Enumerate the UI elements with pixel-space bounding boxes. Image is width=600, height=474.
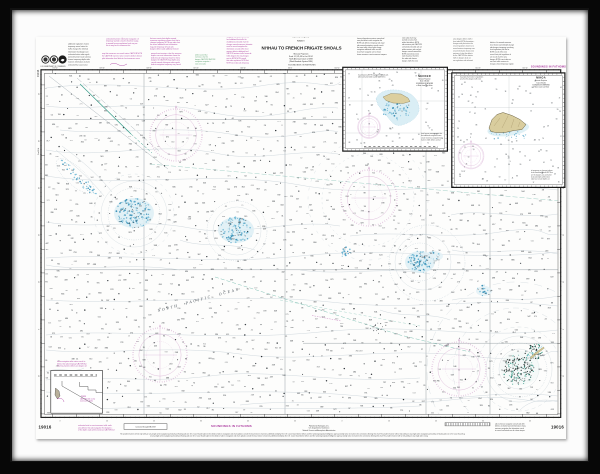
svg-text:46: 46 — [250, 137, 252, 139]
svg-text:728: 728 — [89, 252, 92, 254]
svg-text:20: 20 — [508, 140, 510, 142]
svg-text:46: 46 — [199, 363, 201, 365]
svg-text:979: 979 — [179, 111, 182, 113]
svg-text:673: 673 — [267, 257, 270, 259]
svg-text:974: 974 — [323, 117, 326, 119]
svg-text:896: 896 — [291, 327, 294, 329]
svg-text:92: 92 — [206, 221, 208, 223]
svg-text:45: 45 — [461, 84, 463, 86]
svg-text:27: 27 — [421, 349, 423, 351]
svg-text:70: 70 — [542, 138, 544, 140]
svg-text:61: 61 — [237, 211, 239, 213]
svg-text:36: 36 — [220, 87, 222, 89]
svg-text:51: 51 — [169, 210, 171, 212]
svg-text:95: 95 — [116, 95, 118, 97]
svg-text:73: 73 — [219, 373, 221, 375]
svg-text:802: 802 — [166, 180, 169, 182]
svg-text:899: 899 — [77, 298, 80, 300]
svg-text:520: 520 — [433, 278, 436, 280]
svg-text:364: 364 — [231, 238, 234, 240]
svg-text:32: 32 — [197, 406, 199, 408]
svg-text:795: 795 — [458, 321, 461, 323]
svg-text:992: 992 — [427, 180, 430, 182]
svg-text:88: 88 — [58, 87, 60, 89]
svg-text:90: 90 — [415, 73, 417, 75]
svg-text:44: 44 — [202, 279, 204, 281]
svg-text:88: 88 — [390, 408, 392, 410]
svg-text:32: 32 — [250, 412, 252, 414]
svg-text:540: 540 — [453, 387, 456, 389]
svg-text:323: 323 — [128, 232, 131, 234]
svg-text:404: 404 — [495, 332, 498, 334]
svg-text:398: 398 — [159, 223, 162, 225]
svg-text:717: 717 — [46, 140, 49, 142]
svg-text:coast chart additional chart n: coast chart additional chart n — [453, 37, 473, 38]
svg-text:960: 960 — [498, 203, 501, 205]
svg-text:88: 88 — [476, 125, 478, 127]
svg-text:429: 429 — [118, 280, 121, 282]
svg-text:73: 73 — [458, 121, 460, 123]
svg-text:75: 75 — [209, 302, 211, 304]
svg-text:86: 86 — [451, 278, 453, 280]
svg-text:817: 817 — [422, 401, 425, 403]
svg-text:460: 460 — [431, 412, 434, 414]
svg-text:91: 91 — [265, 182, 267, 184]
svg-text:HAWAI‘I: HAWAI‘I — [297, 40, 305, 43]
svg-text:51: 51 — [160, 412, 162, 414]
svg-text:19016: 19016 — [39, 425, 52, 430]
svg-text:888: 888 — [230, 280, 233, 282]
svg-text:333: 333 — [301, 381, 304, 383]
svg-text:43: 43 — [392, 85, 394, 87]
svg-text:888: 888 — [240, 219, 243, 221]
svg-text:368: 368 — [228, 223, 231, 225]
svg-text:361: 361 — [267, 342, 270, 344]
svg-text:814: 814 — [529, 257, 532, 259]
svg-text:74: 74 — [424, 172, 426, 174]
svg-text:259: 259 — [144, 290, 147, 292]
svg-text:796: 796 — [368, 377, 371, 379]
svg-text:41: 41 — [76, 359, 78, 361]
svg-text:38: 38 — [437, 91, 439, 93]
svg-text:804: 804 — [415, 248, 418, 250]
svg-text:271: 271 — [80, 103, 83, 105]
svg-text:98: 98 — [140, 213, 142, 215]
svg-text:247: 247 — [70, 210, 73, 212]
svg-text:40: 40 — [150, 81, 152, 83]
svg-text:74: 74 — [240, 358, 242, 360]
svg-text:609: 609 — [140, 104, 143, 106]
svg-text:641: 641 — [326, 200, 329, 202]
svg-text:727: 727 — [375, 294, 378, 296]
svg-text:56: 56 — [208, 291, 210, 293]
svg-text:84: 84 — [276, 358, 278, 360]
svg-text:99: 99 — [329, 396, 331, 398]
svg-text:34: 34 — [335, 390, 337, 392]
svg-text:98: 98 — [557, 168, 559, 170]
svg-text:671: 671 — [166, 137, 169, 139]
svg-text:361: 361 — [519, 388, 522, 390]
svg-text:29: 29 — [394, 372, 396, 374]
svg-text:923: 923 — [342, 309, 345, 311]
svg-text:980: 980 — [350, 375, 353, 377]
svg-text:79: 79 — [140, 252, 142, 254]
svg-text:uncharted that coast notice: uncharted that coast notice — [68, 63, 88, 66]
svg-text:501: 501 — [147, 405, 150, 407]
svg-text:76: 76 — [536, 389, 538, 391]
svg-text:223: 223 — [110, 289, 113, 291]
svg-text:328: 328 — [198, 111, 201, 113]
svg-text:95: 95 — [277, 269, 279, 271]
svg-text:375: 375 — [52, 333, 55, 335]
svg-text:491: 491 — [80, 331, 83, 333]
svg-text:79: 79 — [286, 321, 288, 323]
svg-text:55: 55 — [540, 230, 542, 232]
svg-text:217: 217 — [206, 408, 209, 410]
svg-text:229: 229 — [325, 223, 328, 225]
svg-text:35: 35 — [324, 369, 326, 371]
svg-text:uncharted exist to coast numer: uncharted exist to coast numerous traffi… — [78, 424, 112, 427]
svg-text:77: 77 — [217, 259, 219, 261]
svg-text:338: 338 — [72, 359, 75, 361]
svg-text:57: 57 — [343, 249, 345, 251]
svg-text:83: 83 — [472, 388, 474, 390]
svg-text:263: 263 — [517, 378, 520, 380]
svg-text:90: 90 — [364, 206, 366, 208]
svg-text:660: 660 — [260, 297, 263, 299]
svg-text:79: 79 — [466, 139, 468, 141]
svg-text:64: 64 — [124, 385, 126, 387]
svg-text:615: 615 — [551, 409, 554, 411]
svg-text:84: 84 — [157, 115, 159, 117]
svg-text:442: 442 — [404, 332, 407, 334]
svg-text:55: 55 — [371, 92, 373, 94]
svg-text:97: 97 — [243, 410, 245, 412]
svg-text:28: 28 — [500, 353, 502, 355]
svg-text:90: 90 — [277, 140, 279, 142]
svg-text:51: 51 — [211, 317, 213, 319]
svg-text:215: 215 — [100, 180, 103, 182]
svg-text:17: 17 — [505, 179, 507, 181]
svg-text:573: 573 — [420, 304, 423, 306]
svg-text:863: 863 — [182, 294, 185, 296]
svg-text:78: 78 — [479, 331, 481, 333]
svg-text:868: 868 — [119, 221, 122, 223]
svg-text:567: 567 — [204, 163, 207, 165]
svg-text:23: 23 — [250, 269, 252, 271]
svg-text:552: 552 — [97, 101, 100, 103]
svg-text:234: 234 — [235, 309, 238, 311]
svg-text:956: 956 — [540, 215, 543, 217]
svg-text:884: 884 — [364, 284, 367, 286]
svg-text:95: 95 — [178, 381, 180, 383]
svg-text:94: 94 — [425, 122, 427, 124]
svg-text:219: 219 — [222, 143, 225, 145]
svg-text:53: 53 — [499, 177, 501, 179]
svg-text:268: 268 — [551, 342, 554, 344]
svg-text:23: 23 — [113, 228, 115, 230]
svg-text:857: 857 — [345, 386, 348, 388]
svg-text:70: 70 — [367, 388, 369, 390]
svg-text:996: 996 — [499, 213, 502, 215]
svg-text:37: 37 — [139, 283, 141, 285]
svg-text:611: 611 — [98, 317, 101, 319]
svg-text:0′: 0′ — [39, 328, 41, 330]
svg-text:624: 624 — [341, 348, 344, 350]
svg-text:314: 314 — [326, 349, 329, 351]
svg-text:569: 569 — [509, 356, 512, 358]
svg-text:712: 712 — [372, 173, 375, 175]
svg-text:917: 917 — [108, 333, 111, 335]
svg-text:579: 579 — [149, 239, 152, 241]
svg-text:361: 361 — [477, 191, 480, 193]
svg-text:939: 939 — [385, 322, 388, 324]
svg-text:99: 99 — [498, 375, 500, 377]
svg-text:89: 89 — [467, 221, 469, 223]
svg-text:914: 914 — [157, 177, 160, 179]
svg-text:370: 370 — [280, 359, 283, 361]
svg-text:94: 94 — [160, 385, 162, 387]
svg-text:65: 65 — [296, 76, 298, 78]
svg-text:41: 41 — [270, 150, 272, 152]
svg-text:220: 220 — [452, 328, 455, 330]
svg-text:48: 48 — [312, 166, 314, 168]
svg-text:41: 41 — [470, 327, 472, 329]
svg-text:523: 523 — [459, 310, 462, 312]
svg-text:49: 49 — [240, 83, 242, 85]
svg-text:30: 30 — [47, 373, 49, 375]
svg-text:98: 98 — [516, 176, 518, 178]
svg-text:502: 502 — [443, 273, 446, 275]
svg-text:44: 44 — [341, 268, 343, 270]
svg-text:826: 826 — [311, 169, 314, 171]
svg-text:45: 45 — [560, 87, 562, 89]
svg-text:34: 34 — [495, 394, 497, 396]
svg-text:95: 95 — [212, 287, 214, 289]
svg-text:57: 57 — [469, 112, 471, 114]
svg-text:309: 309 — [274, 311, 277, 313]
svg-text:938: 938 — [253, 85, 256, 87]
svg-text:480: 480 — [235, 135, 238, 137]
svg-text:269: 269 — [251, 395, 254, 397]
svg-text:49: 49 — [486, 181, 488, 183]
svg-text:96: 96 — [500, 144, 502, 146]
svg-text:350: 350 — [69, 250, 72, 252]
svg-text:93: 93 — [304, 147, 306, 149]
svg-text:33: 33 — [287, 111, 289, 113]
svg-text:219: 219 — [516, 232, 519, 234]
svg-text:367: 367 — [46, 249, 49, 251]
svg-text:36: 36 — [532, 87, 534, 89]
svg-text:354: 354 — [147, 176, 150, 178]
svg-text:79: 79 — [492, 240, 494, 242]
svg-text:358: 358 — [64, 165, 67, 167]
svg-text:37: 37 — [415, 75, 417, 77]
svg-text:165°0′: 165°0′ — [288, 68, 293, 70]
svg-text:255: 255 — [148, 78, 151, 80]
svg-text:38: 38 — [441, 185, 443, 187]
svg-text:90: 90 — [508, 164, 510, 166]
svg-text:31: 31 — [365, 373, 367, 375]
svg-text:853: 853 — [323, 235, 326, 237]
svg-text:435: 435 — [354, 244, 357, 246]
svg-text:777: 777 — [237, 235, 240, 237]
svg-text:248: 248 — [353, 340, 356, 342]
svg-text:17: 17 — [533, 182, 535, 184]
svg-text:894: 894 — [181, 319, 184, 321]
svg-text:32: 32 — [181, 196, 183, 198]
svg-text:95: 95 — [184, 371, 186, 373]
svg-text:55: 55 — [365, 324, 367, 326]
svg-text:50: 50 — [468, 157, 470, 159]
svg-text:489: 489 — [509, 290, 512, 292]
svg-text:83: 83 — [552, 166, 554, 168]
svg-text:405: 405 — [68, 235, 71, 237]
svg-text:497: 497 — [177, 102, 180, 104]
svg-text:86: 86 — [91, 161, 93, 163]
svg-text:66: 66 — [301, 395, 303, 397]
svg-text:63: 63 — [375, 340, 377, 342]
svg-text:local are uncharted are naviga: local are uncharted are navigation regul — [150, 37, 179, 38]
svg-text:68: 68 — [470, 95, 472, 97]
svg-text:341: 341 — [349, 304, 352, 306]
svg-text:29: 29 — [472, 103, 474, 105]
svg-text:560: 560 — [171, 141, 174, 143]
svg-text:822: 822 — [175, 386, 178, 388]
svg-text:51: 51 — [61, 253, 63, 255]
svg-text:68: 68 — [378, 281, 380, 283]
svg-text:358: 358 — [49, 288, 52, 290]
svg-text:75: 75 — [71, 310, 73, 312]
svg-text:60: 60 — [556, 118, 558, 120]
svg-text:40′: 40′ — [247, 420, 250, 422]
svg-text:795: 795 — [75, 204, 78, 206]
svg-text:306: 306 — [466, 271, 469, 273]
svg-text:97: 97 — [138, 176, 140, 178]
svg-text:721: 721 — [436, 193, 439, 195]
svg-text:808: 808 — [117, 253, 120, 255]
svg-text:79: 79 — [437, 321, 439, 323]
svg-text:45: 45 — [118, 172, 120, 174]
svg-text:971: 971 — [66, 189, 69, 191]
svg-text:274: 274 — [130, 333, 133, 335]
svg-text:19: 19 — [516, 141, 518, 143]
svg-text:40′: 40′ — [529, 420, 532, 422]
svg-text:577: 577 — [99, 233, 102, 235]
svg-text:845: 845 — [173, 186, 176, 188]
svg-text:42: 42 — [458, 97, 460, 99]
svg-text:37: 37 — [325, 239, 327, 241]
svg-text:91: 91 — [271, 104, 273, 106]
svg-text:850: 850 — [265, 134, 268, 136]
svg-text:64: 64 — [490, 330, 492, 332]
svg-text:74: 74 — [359, 230, 361, 232]
svg-text:61: 61 — [543, 162, 545, 164]
svg-text:16: 16 — [530, 111, 532, 113]
svg-text:519: 519 — [285, 279, 288, 281]
svg-text:961: 961 — [218, 83, 221, 85]
svg-text:470: 470 — [234, 186, 237, 188]
svg-text:72: 72 — [559, 98, 561, 100]
svg-text:868: 868 — [328, 298, 331, 300]
svg-text:62: 62 — [412, 401, 414, 403]
svg-text:71: 71 — [427, 143, 429, 145]
svg-text:246: 246 — [407, 383, 410, 385]
svg-text:571: 571 — [466, 194, 469, 196]
svg-text:862: 862 — [451, 292, 454, 294]
svg-text:20′: 20′ — [435, 420, 438, 422]
svg-text:72: 72 — [182, 342, 184, 344]
svg-text:871: 871 — [331, 279, 334, 281]
svg-text:581: 581 — [402, 234, 405, 236]
svg-text:44: 44 — [232, 118, 234, 120]
svg-text:215: 215 — [157, 167, 160, 169]
svg-text:663: 663 — [178, 366, 181, 368]
svg-text:702: 702 — [290, 245, 293, 247]
svg-text:87: 87 — [531, 302, 533, 304]
svg-text:338: 338 — [451, 193, 454, 195]
svg-text:944: 944 — [331, 164, 334, 166]
svg-text:739: 739 — [277, 194, 280, 196]
svg-text:42: 42 — [251, 330, 253, 332]
svg-text:42: 42 — [413, 363, 415, 365]
svg-text:56: 56 — [237, 261, 239, 263]
svg-text:772: 772 — [140, 71, 143, 73]
svg-text:80: 80 — [459, 174, 461, 176]
svg-text:34: 34 — [101, 300, 103, 302]
svg-text:467: 467 — [191, 332, 194, 334]
svg-text:303: 303 — [424, 256, 427, 258]
svg-text:331: 331 — [483, 230, 486, 232]
svg-text:938: 938 — [436, 171, 439, 173]
svg-text:538: 538 — [526, 373, 529, 375]
svg-text:57: 57 — [490, 216, 492, 218]
svg-text:72: 72 — [125, 108, 127, 110]
svg-text:653: 653 — [218, 137, 221, 139]
svg-text:389: 389 — [123, 279, 126, 281]
svg-text:40: 40 — [153, 362, 155, 364]
svg-text:84: 84 — [495, 79, 497, 81]
svg-text:27: 27 — [473, 214, 475, 216]
svg-text:733: 733 — [201, 318, 204, 320]
svg-text:921: 921 — [460, 380, 463, 382]
svg-text:67: 67 — [221, 322, 223, 324]
svg-text:39: 39 — [75, 124, 77, 126]
svg-text:97: 97 — [379, 88, 381, 90]
svg-text:884: 884 — [98, 292, 101, 294]
svg-text:82: 82 — [500, 323, 502, 325]
svg-text:35: 35 — [280, 369, 282, 371]
svg-text:544: 544 — [521, 191, 524, 193]
svg-text:63: 63 — [293, 285, 295, 287]
svg-text:91: 91 — [418, 134, 420, 136]
svg-text:910: 910 — [255, 111, 258, 113]
svg-text:50: 50 — [473, 234, 475, 236]
svg-text:39: 39 — [322, 103, 324, 105]
svg-text:967: 967 — [85, 127, 88, 129]
svg-text:671: 671 — [211, 150, 214, 152]
svg-text:83: 83 — [139, 299, 141, 301]
svg-text:10′: 10′ — [106, 420, 109, 422]
svg-text:56: 56 — [472, 243, 474, 245]
svg-text:37: 37 — [144, 210, 146, 212]
svg-text:219: 219 — [307, 330, 310, 332]
svg-text:21: 21 — [494, 167, 496, 169]
svg-text:414: 414 — [420, 191, 423, 193]
svg-text:712: 712 — [231, 385, 234, 387]
svg-text:NIHOA: NIHOA — [536, 76, 546, 80]
svg-text:858: 858 — [317, 367, 320, 369]
